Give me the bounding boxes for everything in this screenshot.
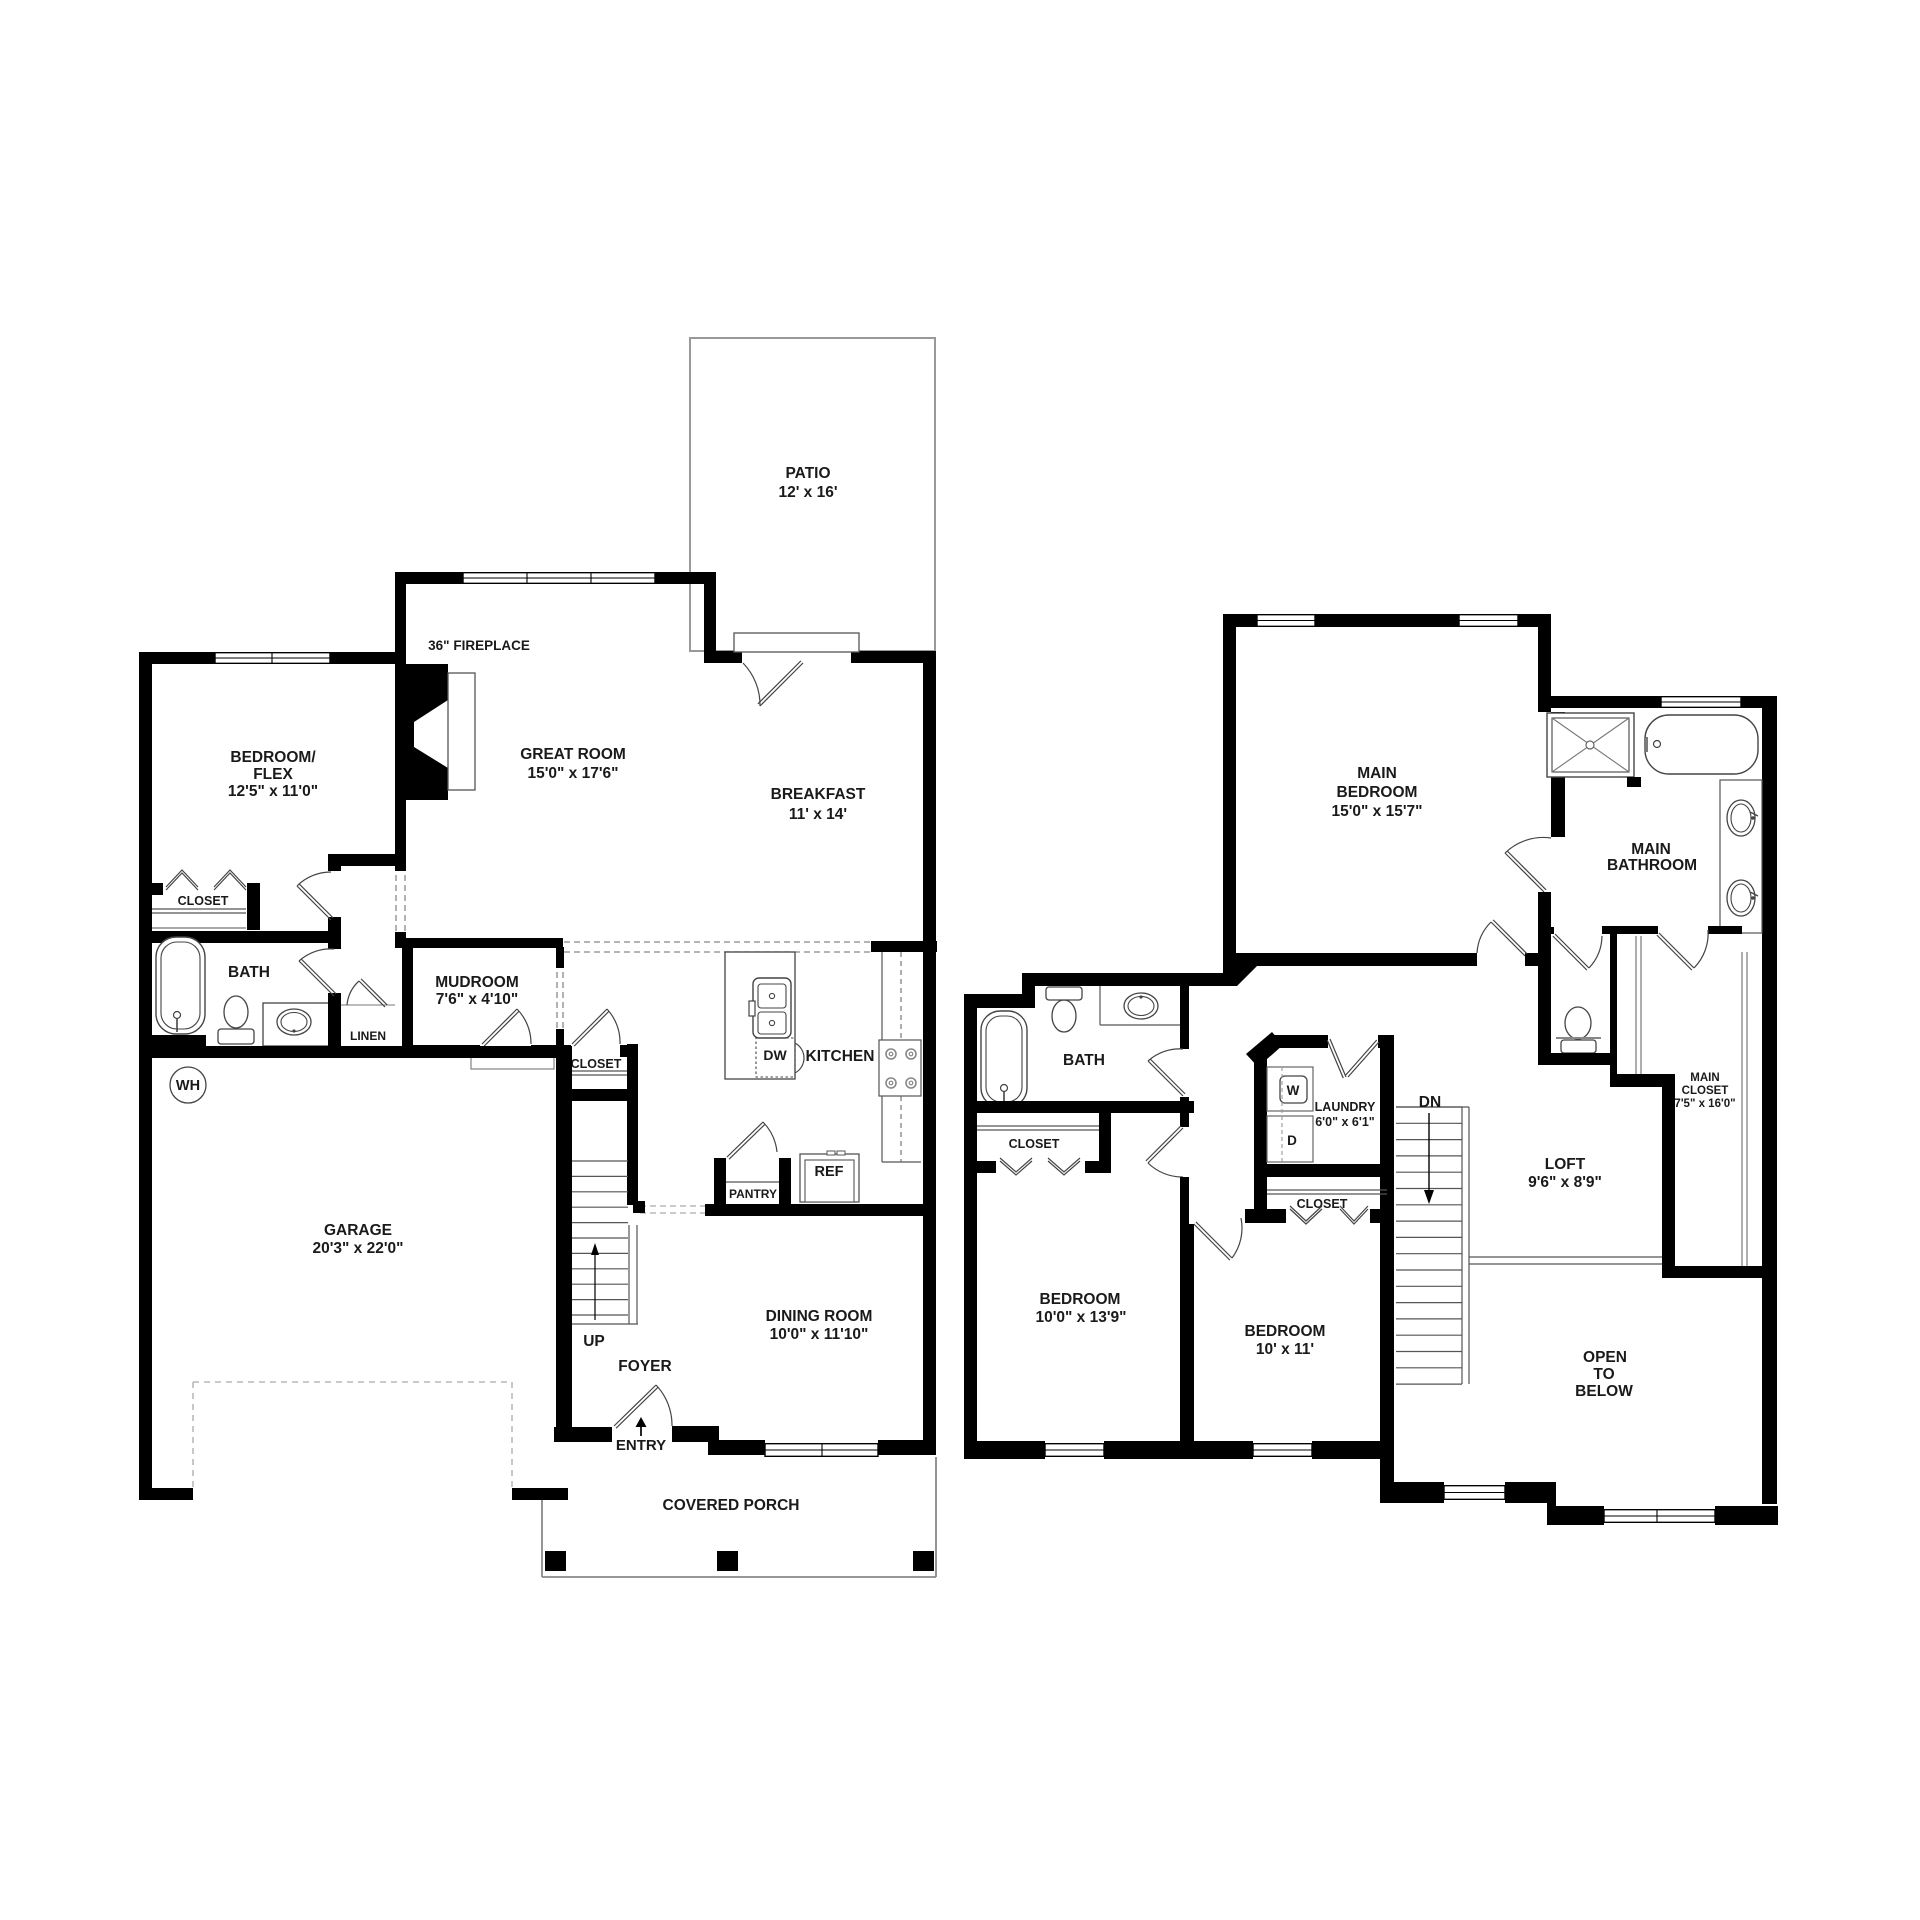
svg-text:LOFT: LOFT [1545,1156,1586,1173]
svg-text:15'0" x 17'6": 15'0" x 17'6" [527,765,618,782]
svg-text:MAIN: MAIN [1631,841,1671,858]
svg-text:BEDROOM: BEDROOM [1040,1291,1121,1308]
svg-text:PANTRY: PANTRY [729,1187,777,1201]
svg-text:MAIN: MAIN [1357,765,1397,782]
svg-text:ENTRY: ENTRY [616,1437,666,1454]
svg-text:CLOSET: CLOSET [1009,1137,1060,1151]
svg-text:BEDROOM/: BEDROOM/ [230,749,316,766]
svg-text:DN: DN [1419,1094,1441,1111]
svg-text:PATIO: PATIO [785,465,830,482]
svg-text:TO: TO [1593,1366,1614,1383]
svg-text:9'6" x 8'9": 9'6" x 8'9" [1528,1174,1602,1191]
svg-text:DINING ROOM: DINING ROOM [766,1308,873,1325]
svg-text:FLEX: FLEX [253,766,293,783]
svg-text:BATHROOM: BATHROOM [1607,857,1697,874]
svg-text:W: W [1287,1083,1300,1098]
svg-text:CLOSET: CLOSET [1297,1197,1348,1211]
svg-text:10'0" x 11'10": 10'0" x 11'10" [770,1326,869,1343]
svg-text:LAUNDRY: LAUNDRY [1315,1100,1376,1114]
svg-text:36" FIREPLACE: 36" FIREPLACE [428,638,530,653]
svg-text:BEDROOM: BEDROOM [1245,1323,1326,1340]
svg-text:LINEN: LINEN [350,1029,386,1043]
svg-text:D: D [1287,1133,1297,1148]
svg-text:12' x 16': 12' x 16' [778,484,837,501]
svg-text:10' x 11': 10' x 11' [1256,1341,1314,1358]
svg-text:11' x 14': 11' x 14' [789,806,847,823]
svg-text:WH: WH [176,1078,200,1094]
svg-text:REF: REF [815,1164,844,1180]
svg-text:MAIN: MAIN [1690,1072,1719,1084]
svg-text:20'3" x 22'0": 20'3" x 22'0" [312,1240,403,1257]
svg-text:COVERED PORCH: COVERED PORCH [663,1497,800,1514]
svg-text:GREAT ROOM: GREAT ROOM [520,746,626,763]
svg-text:FOYER: FOYER [618,1358,671,1375]
svg-text:GARAGE: GARAGE [324,1222,392,1239]
svg-text:UP: UP [583,1333,605,1350]
svg-text:KITCHEN: KITCHEN [806,1048,875,1065]
svg-text:7'5" x 16'0": 7'5" x 16'0" [1674,1098,1735,1110]
svg-text:OPEN: OPEN [1583,1349,1627,1366]
svg-text:12'5" x 11'0": 12'5" x 11'0" [228,783,318,800]
svg-text:6'0" x 6'1": 6'0" x 6'1" [1315,1115,1375,1129]
svg-text:BELOW: BELOW [1575,1383,1633,1400]
svg-text:CLOSET: CLOSET [178,894,229,908]
svg-text:CLOSET: CLOSET [571,1057,622,1071]
svg-text:7'6" x 4'10": 7'6" x 4'10" [436,991,518,1008]
svg-text:BREAKFAST: BREAKFAST [771,786,866,803]
svg-text:15'0" x 15'7": 15'0" x 15'7" [1331,803,1422,820]
svg-text:BEDROOM: BEDROOM [1337,784,1418,801]
svg-text:10'0" x 13'9": 10'0" x 13'9" [1035,1309,1126,1326]
svg-text:BATH: BATH [1063,1052,1105,1069]
svg-text:MUDROOM: MUDROOM [435,974,519,991]
svg-text:DW: DW [763,1047,787,1063]
svg-text:BATH: BATH [228,964,270,981]
svg-text:CLOSET: CLOSET [1682,1085,1729,1097]
